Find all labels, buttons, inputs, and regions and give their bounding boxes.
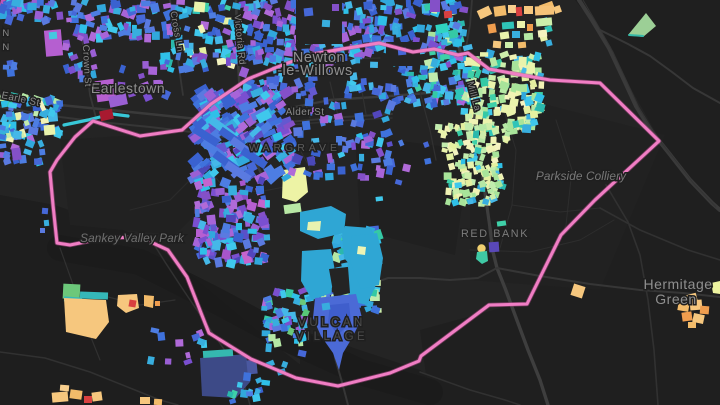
svg-text:Earlestown: Earlestown: [91, 80, 165, 96]
svg-text:Sankey Valley Park: Sankey Valley Park: [80, 231, 185, 245]
svg-text:Parkside Colliery: Parkside Colliery: [536, 169, 627, 183]
svg-text:Green: Green: [655, 291, 696, 307]
svg-text:N: N: [2, 28, 9, 39]
svg-text:N: N: [2, 42, 9, 53]
svg-text:-le-Willows: -le-Willows: [277, 63, 353, 79]
svg-text:RED BANK: RED BANK: [461, 228, 529, 240]
svg-text:WARGRAVE: WARGRAVE: [249, 142, 341, 154]
svg-text:VULCAN: VULCAN: [298, 317, 366, 329]
svg-text:Crown St: Crown St: [80, 44, 93, 87]
svg-text:Alder St: Alder St: [286, 107, 325, 118]
svg-text:VILLAGE: VILLAGE: [296, 331, 368, 343]
svg-text:Hermitage: Hermitage: [643, 276, 712, 292]
